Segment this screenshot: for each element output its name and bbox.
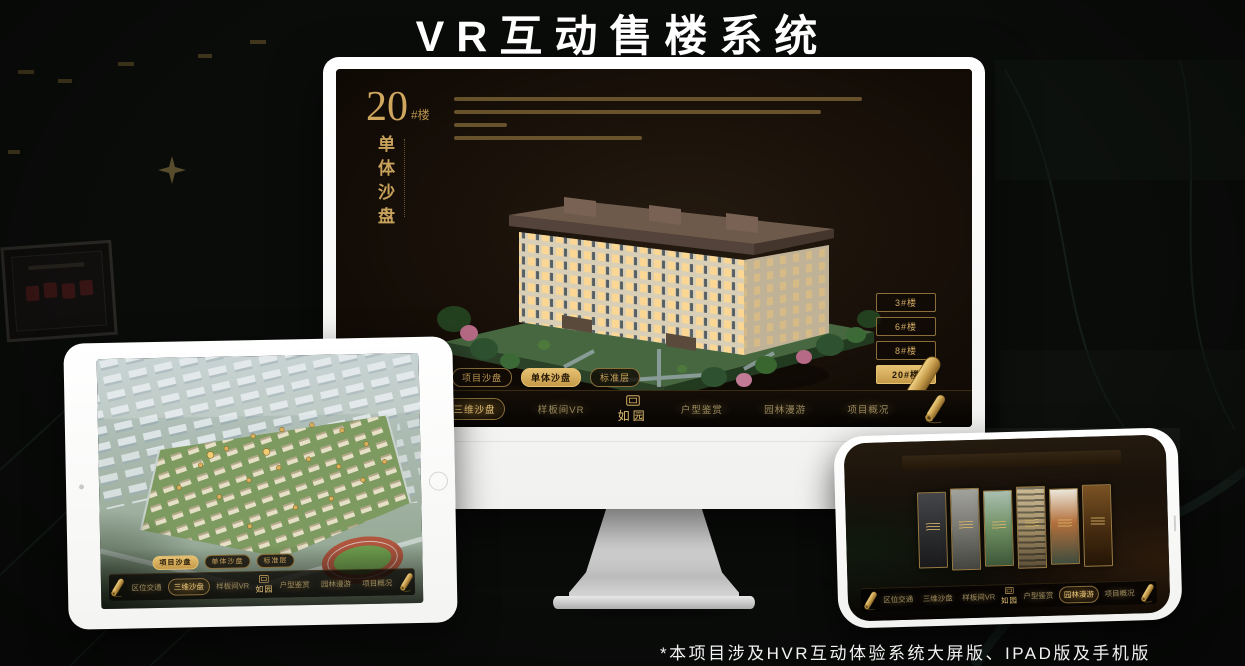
nav-item-showroom-vr[interactable]: 样板间VR	[530, 399, 593, 419]
nav-item-unit-plans[interactable]: 户型鉴赏	[673, 399, 731, 419]
monitor-stand-base	[553, 596, 755, 609]
scroll-icon[interactable]	[1140, 581, 1156, 603]
gallery-card-garden[interactable]	[983, 490, 1014, 567]
scroll-icon[interactable]	[923, 392, 947, 426]
nav-item-project-overview[interactable]: 项目概况	[839, 399, 897, 419]
logo-text: 如园	[1001, 595, 1018, 606]
ruyuan-logo[interactable]: 如园	[1001, 587, 1019, 606]
gallery-card-interior[interactable]	[917, 492, 948, 569]
gallery-card-kitchen[interactable]	[950, 488, 981, 571]
nav-item-showroom-vr[interactable]: 样板间VR	[211, 578, 254, 594]
nav-item-3d-sandtable[interactable]: 三维沙盘	[919, 590, 957, 606]
tablet-screen: 项目沙盘 单体沙盘 标准层 区位交通 三维沙盘 样板间VR 如园 户型鉴赏 园林…	[97, 353, 424, 609]
plaque-decor	[2, 241, 116, 340]
nav-item-3d-sandtable[interactable]: 三维沙盘	[168, 577, 210, 595]
logo-emblem-icon	[626, 395, 640, 406]
phone-screen: 区位交通 三维沙盘 样板间VR 如园 户型鉴赏 园林漫游 项目概况	[844, 435, 1171, 622]
nav-item-garden-tour[interactable]: 园林漫游	[756, 399, 814, 419]
scroll-icon[interactable]	[862, 589, 878, 611]
nav-item-unit-plans[interactable]: 户型鉴赏	[275, 576, 315, 592]
nav-item-garden-tour[interactable]: 园林漫游	[316, 576, 356, 592]
gallery-card-study[interactable]	[1082, 484, 1113, 567]
page-title: VR互动售楼系统	[0, 2, 1245, 64]
home-button[interactable]	[429, 471, 448, 490]
vertical-rule	[404, 139, 405, 217]
gallery-card-autumn[interactable]	[1049, 488, 1080, 565]
tab-project-sandtable[interactable]: 项目沙盘	[452, 368, 512, 387]
nav-item-garden-tour[interactable]: 园林漫游	[1059, 585, 1099, 603]
scene-gallery	[917, 484, 1113, 571]
building-number-suffix: #楼	[411, 106, 430, 123]
tab-single-sandtable[interactable]: 单体沙盘	[521, 368, 581, 387]
nav-item-showroom-vr[interactable]: 样板间VR	[958, 589, 999, 605]
logo-text: 如园	[618, 407, 648, 424]
nav-item-location-traffic[interactable]: 区位交通	[126, 579, 166, 595]
phone-device: 区位交通 三维沙盘 样板间VR 如园 户型鉴赏 园林漫游 项目概况	[833, 427, 1182, 629]
footnote: *本项目涉及HVR互动体验系统大屏版、IPAD版及手机版	[660, 639, 1151, 664]
tab-standard-floor[interactable]: 标准层	[590, 368, 640, 387]
promo-canvas: VR互动售楼系统 20 #楼 单体沙盘	[0, 0, 1245, 666]
tablet-device: 项目沙盘 单体沙盘 标准层 区位交通 三维沙盘 样板间VR 如园 户型鉴赏 园林…	[63, 336, 457, 629]
floor-button-6[interactable]: 6#楼	[876, 317, 936, 336]
nav-item-unit-plans[interactable]: 户型鉴赏	[1019, 588, 1057, 604]
floor-button-3[interactable]: 3#楼	[876, 293, 936, 312]
gallery-card-building[interactable]	[1016, 486, 1047, 569]
ruyuan-logo[interactable]: 如园	[255, 575, 273, 595]
nav-item-project-overview[interactable]: 项目概况	[1100, 585, 1138, 601]
nav-item-location-traffic[interactable]: 区位交通	[879, 592, 917, 608]
tablet-subtabs: 项目沙盘 单体沙盘 标准层	[152, 553, 294, 570]
tab-single-sandtable[interactable]: 单体沙盘	[204, 554, 250, 569]
compass-icon	[158, 156, 186, 184]
nav-item-project-overview[interactable]: 项目概况	[357, 575, 397, 591]
scroll-icon[interactable]	[398, 571, 413, 593]
logo-text: 如园	[255, 584, 273, 595]
scroll-icon[interactable]	[110, 577, 125, 599]
section-title-vertical: 单体沙盘	[372, 135, 397, 231]
camera-icon	[79, 484, 84, 489]
tab-project-sandtable[interactable]: 项目沙盘	[152, 555, 198, 570]
building-number: 20	[366, 89, 408, 127]
ruyuan-logo[interactable]: 如园	[618, 395, 648, 424]
speaker-slot	[1173, 515, 1176, 531]
logo-emblem-icon	[259, 575, 269, 583]
logo-emblem-icon	[1005, 587, 1014, 594]
tab-standard-floor[interactable]: 标准层	[256, 553, 294, 568]
monitor-subtabs: 项目沙盘 单体沙盘 标准层	[452, 368, 640, 387]
